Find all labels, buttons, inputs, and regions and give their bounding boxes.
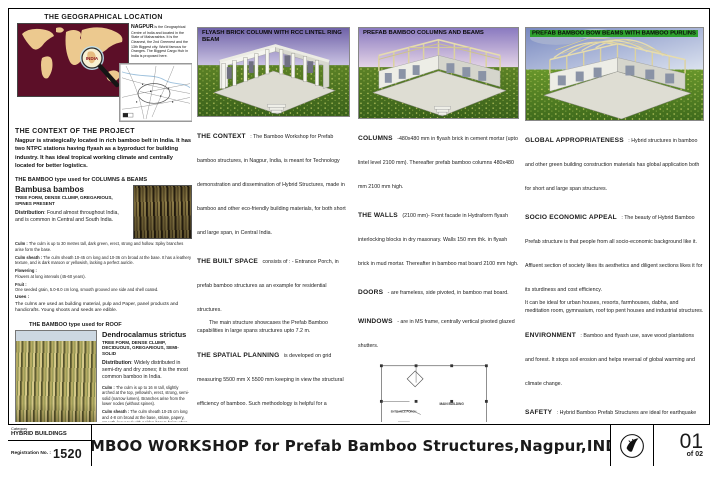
geo-title: THE GEOGRAPHICAL LOCATION [15,14,192,21]
column-prefab-columns: PREFAB BAMBOO COLUMNS AND BEAMS COLUMNS … [358,12,519,422]
nagpur-note: NAGPUR is the Geographical Centre of Ind… [131,24,191,59]
title-plate: BAMBOO WORKSHOP for Prefab Bamboo Struct… [92,425,611,466]
section-spatial-planning: THE SPATIAL PLANNING is developed on gri… [197,341,350,422]
india-label: INDIA [86,56,99,61]
section-built-space: THE BUILT SPACE consists of : - Entrance… [197,247,350,336]
section-environment: ENVIRONMENT : Bamboo and flyash use, sav… [525,321,704,393]
geo-maps: INDIA NAGPUR is the Geographical Centre … [15,23,192,120]
section-walls: THE WALLS (2100 mm)- Front facade in Hyd… [358,201,519,273]
render-bow-beams: PREFAB BAMBOO BOW BEAMS WITH BAMBOO PURL… [525,27,704,121]
column-flyash: FLYASH BRICK COLUMN WITH RCC LINTEL RING… [197,12,350,422]
bambusa-photo [133,185,192,239]
bamboo-columns-title: THE BAMBOO type used for COLUMNS & BEAMS [15,177,192,183]
dendrocalamus-photo [15,330,97,422]
page-number-box: 01 of 02 [654,425,710,466]
bamboo-roof-block: Dendrocalamus strictus TREE FORM, DENSE … [15,330,192,422]
bamboo-columns-block: Bambusa bambos TREE FORM, DENSE CLUMP, G… [15,185,192,315]
context-project-title: THE CONTEXT OF THE PROJECT [15,128,192,135]
render-flyash-structure: FLYASH BRICK COLUMN WITH RCC LINTEL RING… [197,27,350,117]
category-box: Category HYBRID BUILDINGS [8,425,91,441]
page-of: of 02 [687,451,703,458]
category-value: HYBRID BUILDINGS [11,431,88,437]
context-project-body: Nagpur is strategically located in rich … [15,137,192,170]
section-doors: DOORS - are frameless, side pivoted, in … [358,278,519,302]
footer-bar: Category HYBRID BUILDINGS Registration N… [8,424,710,466]
registration-box: Registration No. : 1520 [8,441,91,466]
plan-entrance-label: ENTRANCE PORCH [391,410,417,414]
registration-number: 1520 [53,447,82,461]
bambusa-uses: Uses :The culms are used as building mat… [15,295,192,314]
poster-board: THE GEOGRAPHICAL LOCATION INDIA NAGPU [0,0,720,480]
bamboo-roof-title: THE BAMBOO type used for ROOF [29,322,192,328]
plan-main-label: MAIN BUILDING [440,402,465,406]
render-bow-beams-caption: PREFAB BAMBOO BOW BEAMS WITH BAMBOO PURL… [530,30,699,37]
section-windows: WINDOWS - are in MS frame, centrally ver… [358,307,519,355]
poster-title: BAMBOO WORKSHOP for Prefab Bamboo Struct… [92,437,611,455]
section-global: GLOBAL APPROPRIATENESS : Hybrid structur… [525,126,704,198]
section-safety: SAFETY : Hybrid Bamboo Prefab Structures… [525,398,704,422]
section-columns: COLUMNS -480x480 mm in flyash brick in c… [358,124,519,196]
registration-label: Registration No. : [11,451,51,456]
logo-box [611,425,654,466]
bambusa-culm: Culm : The culm is up to 30 metres tall,… [15,241,192,252]
award-logo-icon [619,433,645,459]
bambusa-distribution: Distribution: Found almost throughout In… [15,210,125,225]
footer-left: Category HYBRID BUILDINGS Registration N… [8,425,92,466]
section-context: THE CONTEXT : The Bamboo Workshop for Pr… [197,122,350,242]
bambusa-flowering: Flowering :Flowers at long intervals (45… [15,268,192,279]
bambusa-fruit: Fruit :One seeded grain, 5.0-8.0 cm long… [15,282,192,293]
render-flyash-caption: FLYASH BRICK COLUMN WITH RCC LINTEL RING… [202,30,345,44]
nagpur-road-map-image [119,63,192,122]
render-bamboo-columns-caption: PREFAB BAMBOO COLUMNS AND BEAMS [363,30,514,37]
bambusa-sheath: Culm sheath : The culm sheath 10-45 cm l… [15,255,192,266]
nagpur-name: NAGPUR [131,24,153,30]
world-map-image: INDIA [17,23,129,97]
column-geography: THE GEOGRAPHICAL LOCATION INDIA NAGPU [15,12,192,422]
floor-plan-labeled: ENTRANCE PORCH MAIN BUILDING Prevailing … [372,360,519,422]
render-bamboo-columns: PREFAB BAMBOO COLUMNS AND BEAMS [358,27,519,119]
page-number: 01 [680,433,703,451]
column-bow-beams: PREFAB BAMBOO BOW BEAMS WITH BAMBOO PURL… [525,12,704,422]
bambusa-traits: TREE FORM, DENSE CLUMP, GREGARIOUS, SPIN… [15,195,123,206]
section-socio: SOCIO ECONOMIC APPEAL : The beauty of Hy… [525,203,704,316]
